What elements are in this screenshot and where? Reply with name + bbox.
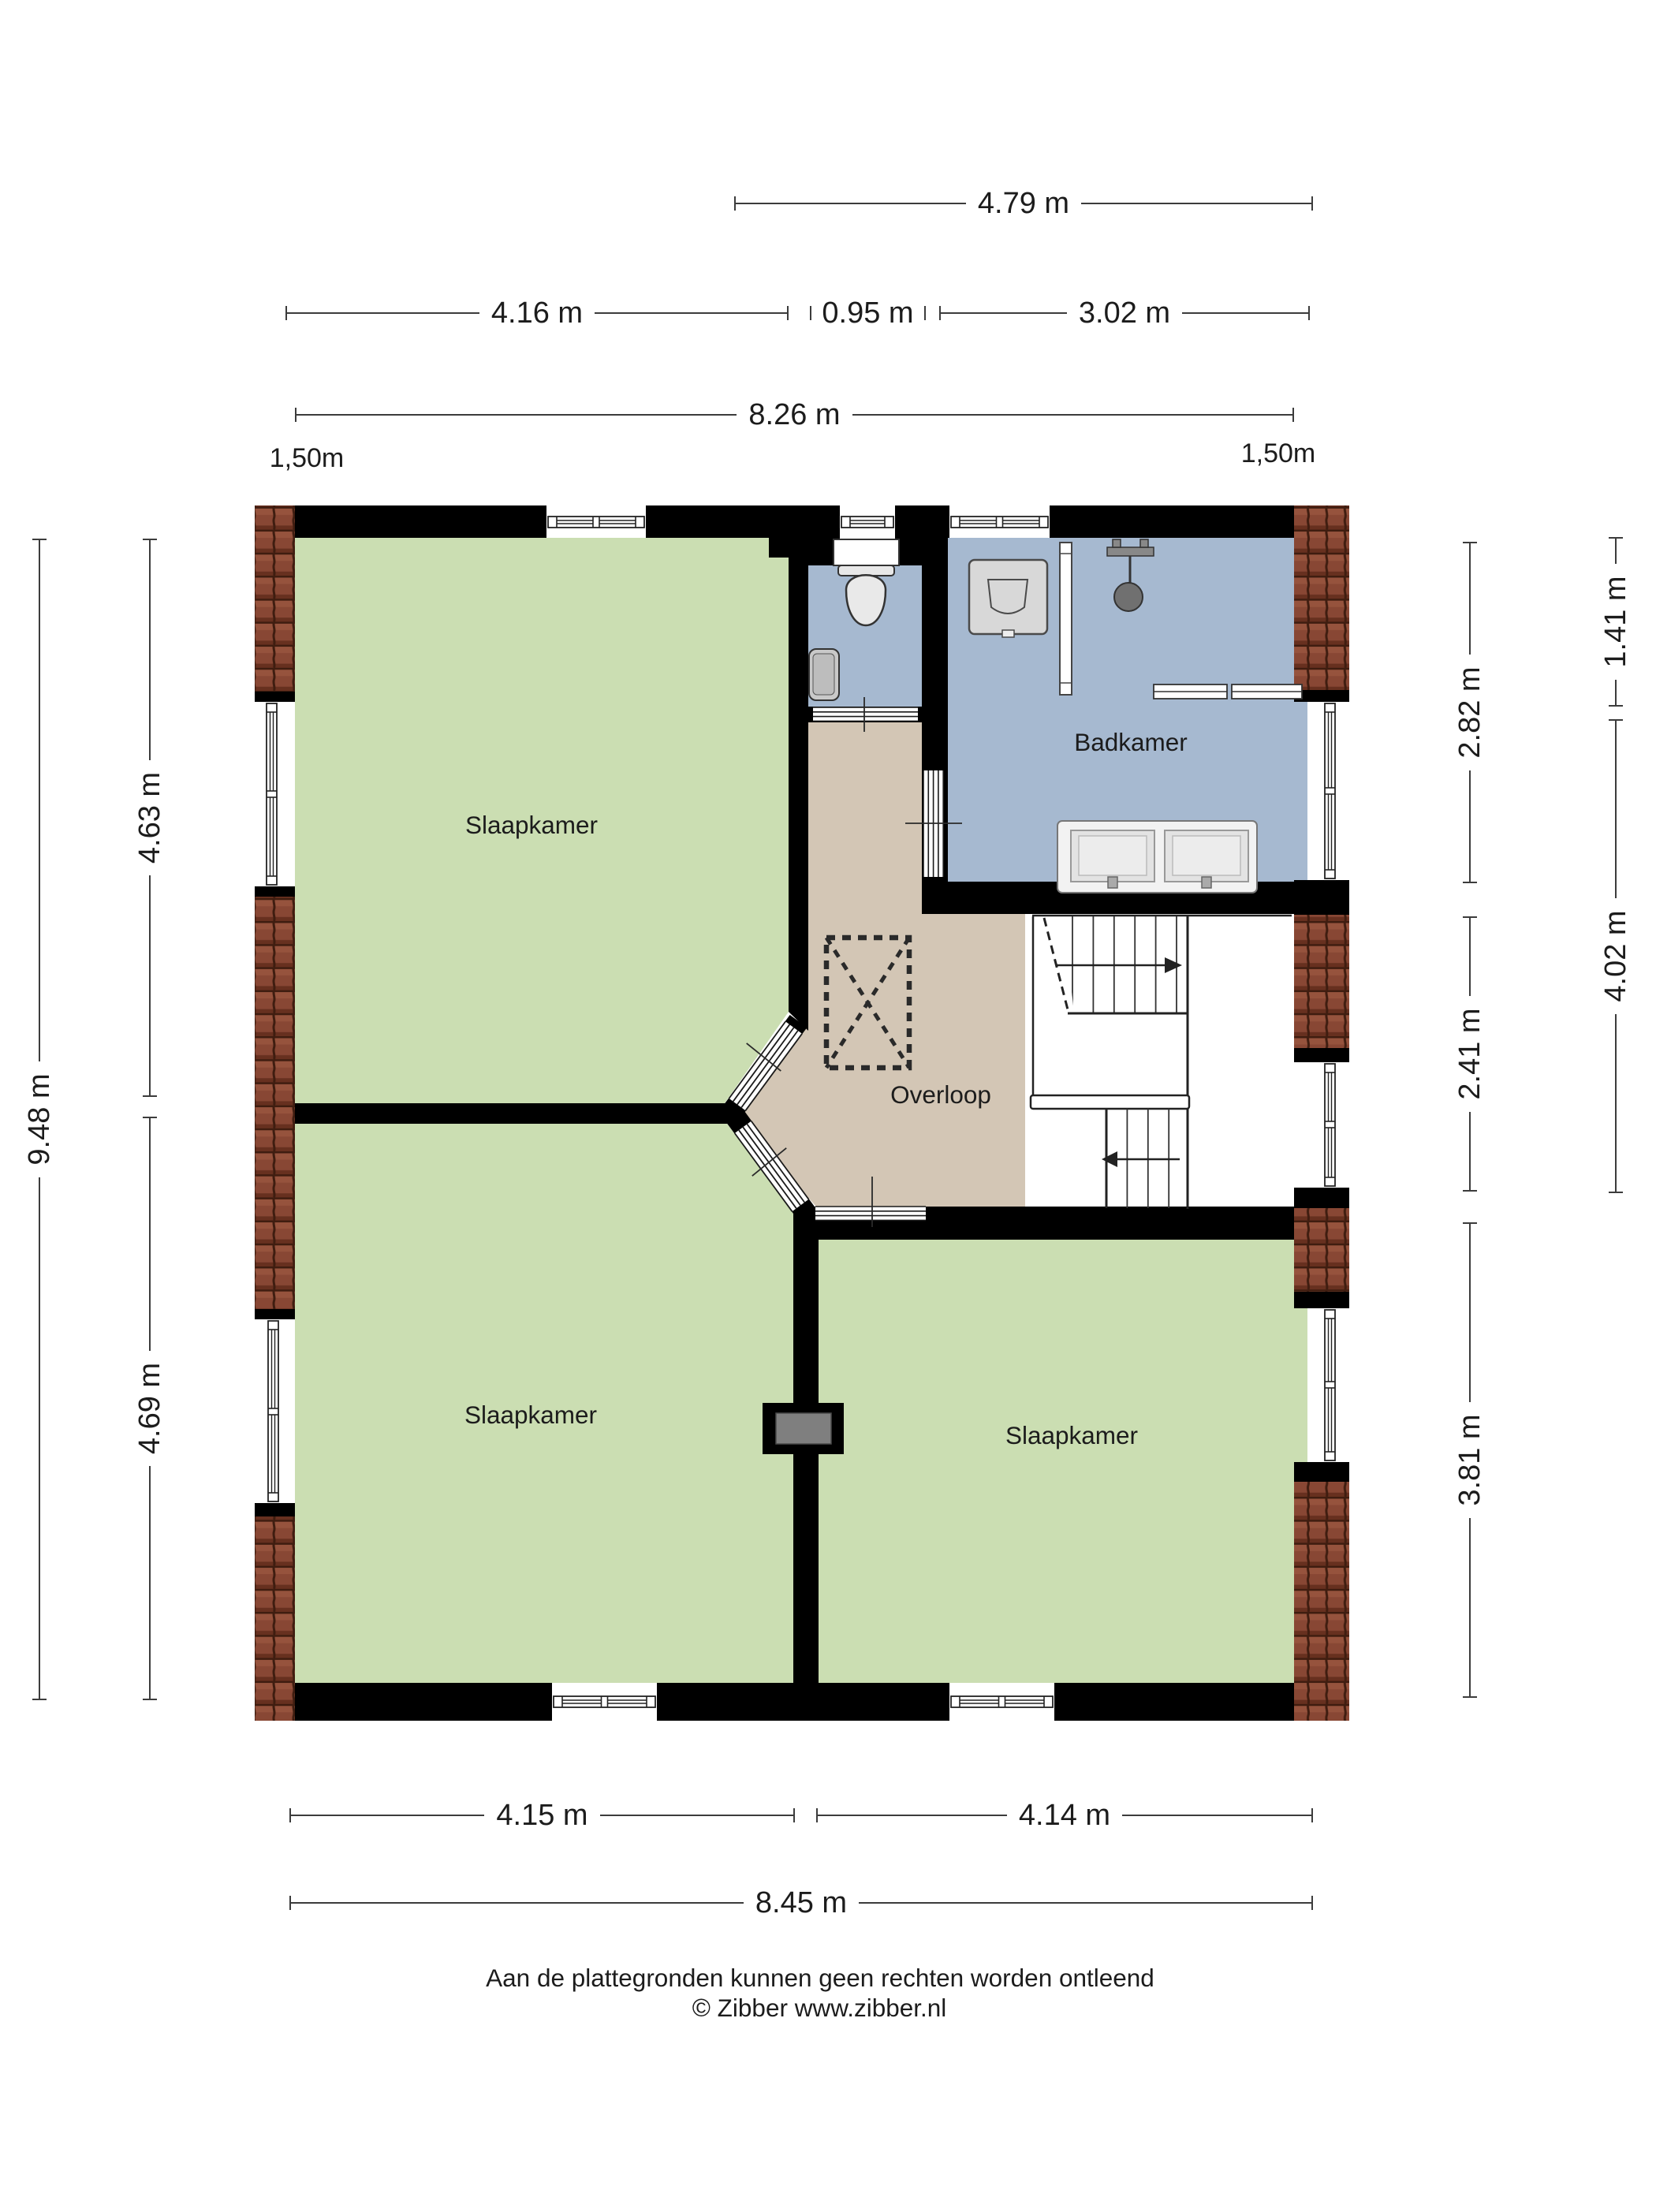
svg-text:8.26 m: 8.26 m	[748, 398, 840, 431]
svg-text:3.81 m: 3.81 m	[1453, 1414, 1486, 1505]
svg-text:© Zibber www.zibber.nl: © Zibber www.zibber.nl	[692, 1994, 947, 2022]
svg-text:Overloop: Overloop	[890, 1080, 991, 1109]
svg-text:1.41 m: 1.41 m	[1599, 576, 1632, 667]
svg-text:4.02 m: 4.02 m	[1599, 910, 1632, 1002]
svg-text:9.48 m: 9.48 m	[23, 1073, 56, 1165]
svg-text:4.69 m: 4.69 m	[133, 1363, 166, 1454]
svg-text:Slaapkamer: Slaapkamer	[465, 811, 598, 839]
svg-text:3.02 m: 3.02 m	[1079, 297, 1170, 330]
svg-text:Slaapkamer: Slaapkamer	[464, 1401, 597, 1429]
svg-text:0.95 m: 0.95 m	[822, 297, 913, 330]
svg-text:Aan de plattegronden kunnen ge: Aan de plattegronden kunnen geen rechten…	[486, 1964, 1154, 1992]
svg-text:1,50m: 1,50m	[1241, 438, 1316, 468]
svg-text:2.82 m: 2.82 m	[1453, 666, 1486, 758]
svg-text:1,50m: 1,50m	[270, 443, 345, 473]
svg-text:4.79 m: 4.79 m	[978, 187, 1069, 220]
svg-text:Badkamer: Badkamer	[1074, 728, 1188, 756]
svg-text:4.16 m: 4.16 m	[491, 297, 583, 330]
svg-text:4.14 m: 4.14 m	[1019, 1799, 1110, 1832]
svg-text:8.45 m: 8.45 m	[755, 1886, 847, 1919]
svg-text:4.63 m: 4.63 m	[133, 772, 166, 864]
svg-text:2.41 m: 2.41 m	[1453, 1008, 1486, 1099]
svg-text:Slaapkamer: Slaapkamer	[1005, 1421, 1138, 1449]
svg-text:4.15 m: 4.15 m	[496, 1799, 587, 1832]
